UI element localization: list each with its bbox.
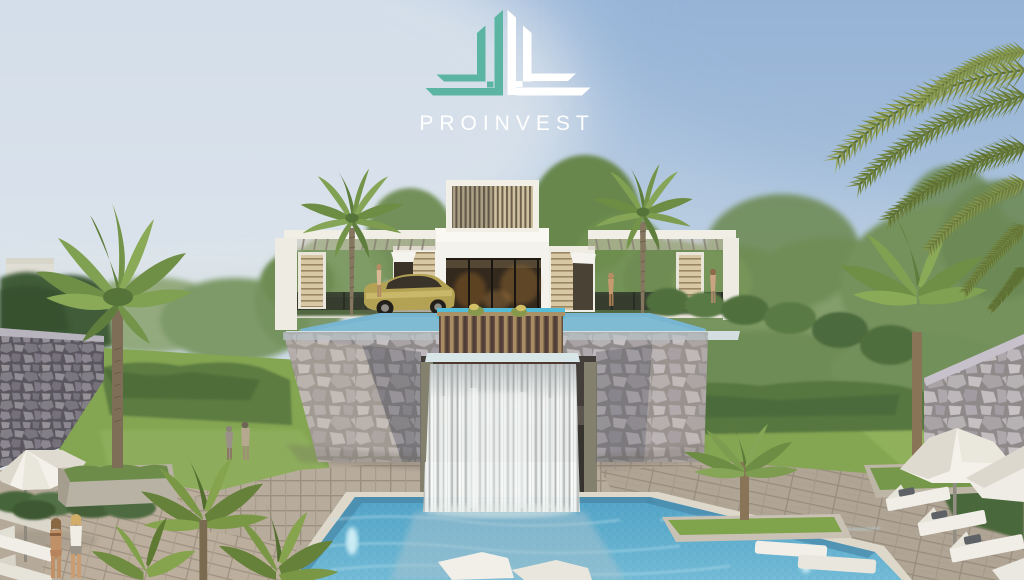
svg-text:PROINVEST: PROINVEST [419, 112, 594, 135]
